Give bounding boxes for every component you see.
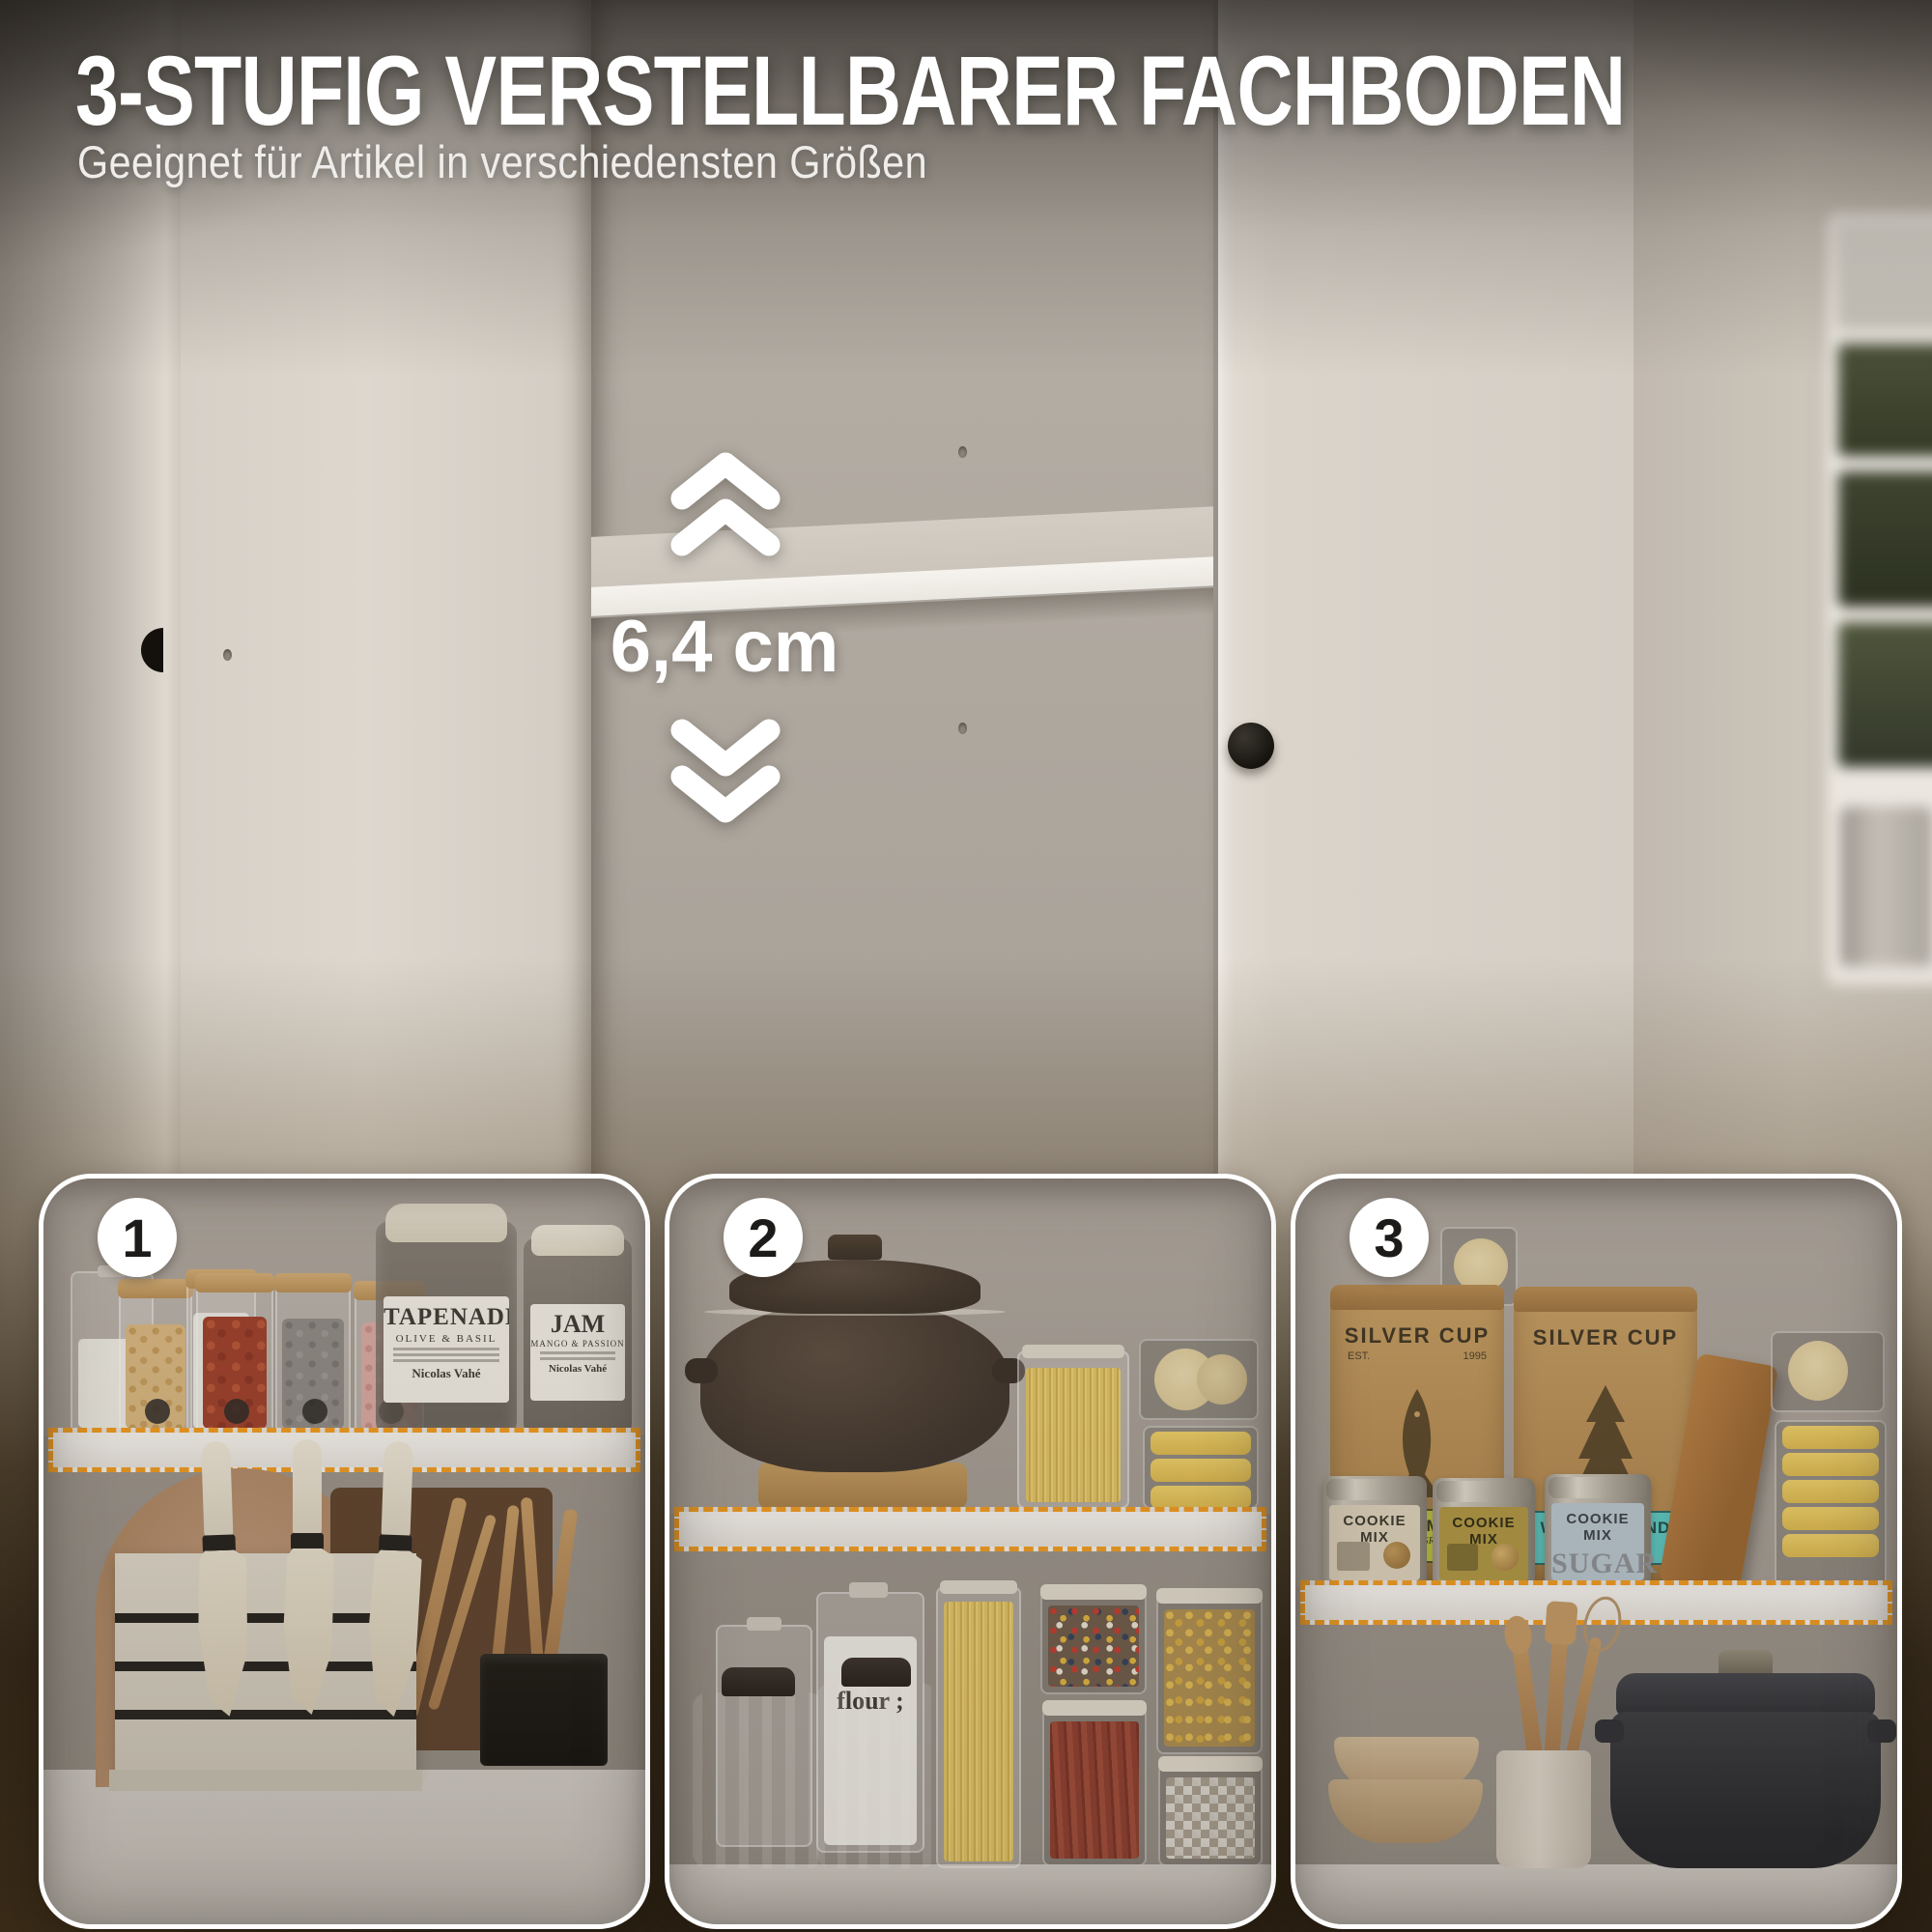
panel-tint: [43, 1179, 645, 1924]
shelf-spacing-measurement: 6,4 cm: [536, 605, 913, 689]
shelf-peg-hole: [223, 649, 232, 661]
panel-tint: [669, 1179, 1271, 1924]
panel-tint: [1295, 1179, 1897, 1924]
background-canister: [1840, 807, 1932, 966]
page-title: 3-STUFIG VERSTELLBARER FACHBODEN: [75, 35, 1831, 148]
shelf-config-panel-2: flour ; 2: [665, 1174, 1276, 1929]
product-infographic: 3-STUFIG VERSTELLBARER FACHBODEN Geeigne…: [0, 0, 1932, 1932]
shelf-peg-hole: [958, 446, 967, 458]
double-chevron-down-icon: [668, 717, 782, 825]
shelf-peg-hole: [958, 723, 967, 734]
background-jar: [1838, 622, 1932, 767]
right-door-knob: [1228, 723, 1274, 769]
panel-number-badge: 1: [98, 1198, 177, 1277]
background-jar: [1838, 471, 1932, 607]
double-chevron-up-icon: [668, 450, 782, 558]
page-subtitle: Geeignet für Artikel in verschiedensten …: [77, 135, 1267, 188]
shelf-config-panel-3: SILVER CUP EST. 1995 SNOHO MOJO COARSE G…: [1291, 1174, 1902, 1929]
shelf-config-panel-1: TAPENADE OLIVE & BASIL Nicolas Vahé JAM …: [39, 1174, 650, 1929]
panel-number-badge: 3: [1350, 1198, 1429, 1277]
background-jar: [1838, 344, 1932, 456]
background-jar: [1838, 224, 1932, 328]
panel-number-badge: 2: [724, 1198, 803, 1277]
left-door-knob: [141, 628, 163, 672]
